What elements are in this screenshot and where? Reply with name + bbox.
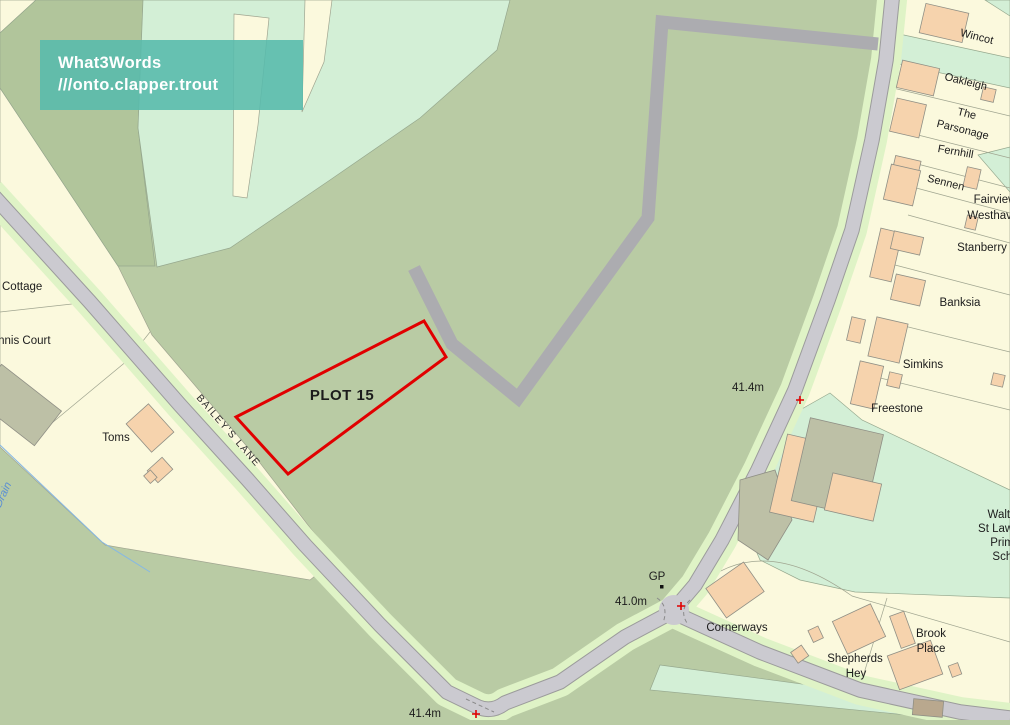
label-shepherds-hey: Hey	[846, 668, 867, 680]
label-school-3: Primary	[990, 537, 1010, 549]
what3words-address: ///onto.clapper.trout	[58, 74, 303, 96]
label-cornerways: Cornerways	[706, 622, 768, 634]
label-banksia: Banksia	[940, 297, 982, 309]
label-simkins: Simkins	[903, 359, 944, 371]
label-spot-41-4b: 41.4m	[409, 708, 441, 720]
label-freestone: Freestone	[871, 403, 923, 415]
label-brook: Brook	[916, 628, 946, 640]
what3words-badge: What3Words ///onto.clapper.trout	[40, 40, 303, 110]
gp-dot	[660, 585, 664, 589]
label-tennis-court: Tennis Court	[0, 335, 51, 347]
what3words-title: What3Words	[58, 52, 303, 74]
label-fairview: Fairview	[974, 194, 1010, 206]
map-page: { "badge": { "title": "What3Words", "wor…	[0, 0, 1010, 720]
label-westhaven: Westhaven	[967, 210, 1010, 222]
label-brook-place: Place	[917, 643, 946, 655]
label-school-4: School	[992, 551, 1010, 563]
label-school-2: St Lawrence	[978, 523, 1010, 535]
label-spot-41-4: 41.4m	[732, 382, 764, 394]
label-gp: GP	[649, 571, 666, 583]
label-cottage: Cottage	[2, 281, 42, 293]
label-school-1: Waltham	[988, 509, 1010, 521]
label-stanberry: Stanberry	[957, 242, 1007, 254]
label-toms: Toms	[102, 432, 130, 444]
label-shepherds: Shepherds	[827, 653, 883, 665]
label-plot-15: PLOT 15	[310, 387, 374, 404]
label-spot-41-0: 41.0m	[615, 596, 647, 608]
